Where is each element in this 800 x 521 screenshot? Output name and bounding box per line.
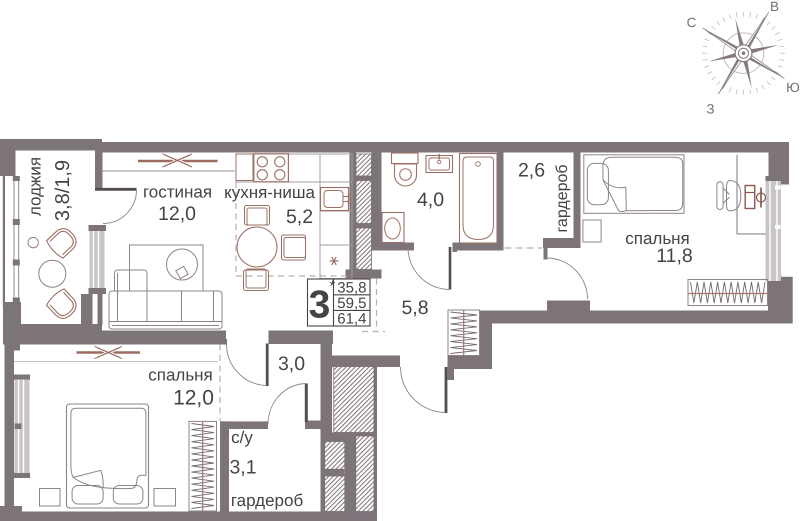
- svg-text:5,2: 5,2: [286, 206, 313, 228]
- svg-text:гардероб: гардероб: [554, 164, 571, 232]
- svg-text:12,0: 12,0: [173, 387, 214, 410]
- svg-text:гардероб: гардероб: [231, 491, 304, 510]
- svg-text:*: *: [330, 278, 336, 295]
- svg-text:11,8: 11,8: [656, 245, 693, 267]
- svg-text:3,1: 3,1: [229, 457, 256, 479]
- svg-text:35,8: 35,8: [337, 280, 366, 297]
- svg-text:С: С: [687, 15, 697, 30]
- svg-text:лоджия: лоджия: [25, 157, 44, 216]
- svg-text:4,0: 4,0: [417, 189, 444, 211]
- svg-text:В: В: [770, 0, 779, 14]
- svg-text:12,0: 12,0: [158, 203, 196, 225]
- svg-text:с/у: с/у: [231, 428, 253, 447]
- svg-text:59,5: 59,5: [337, 295, 366, 312]
- svg-text:2,6: 2,6: [518, 160, 545, 182]
- svg-text:3: 3: [309, 284, 331, 327]
- svg-text:спальня: спальня: [148, 366, 213, 385]
- svg-text:5,8: 5,8: [401, 297, 428, 319]
- svg-text:3,8/1,9: 3,8/1,9: [52, 160, 74, 221]
- svg-text:кухня-ниша: кухня-ниша: [224, 183, 315, 202]
- svg-text:3,0: 3,0: [278, 353, 305, 375]
- svg-text:З: З: [706, 102, 714, 117]
- svg-text:61,4: 61,4: [337, 311, 366, 328]
- svg-text:гостиная: гостиная: [143, 183, 212, 202]
- svg-text:Ю: Ю: [786, 80, 800, 95]
